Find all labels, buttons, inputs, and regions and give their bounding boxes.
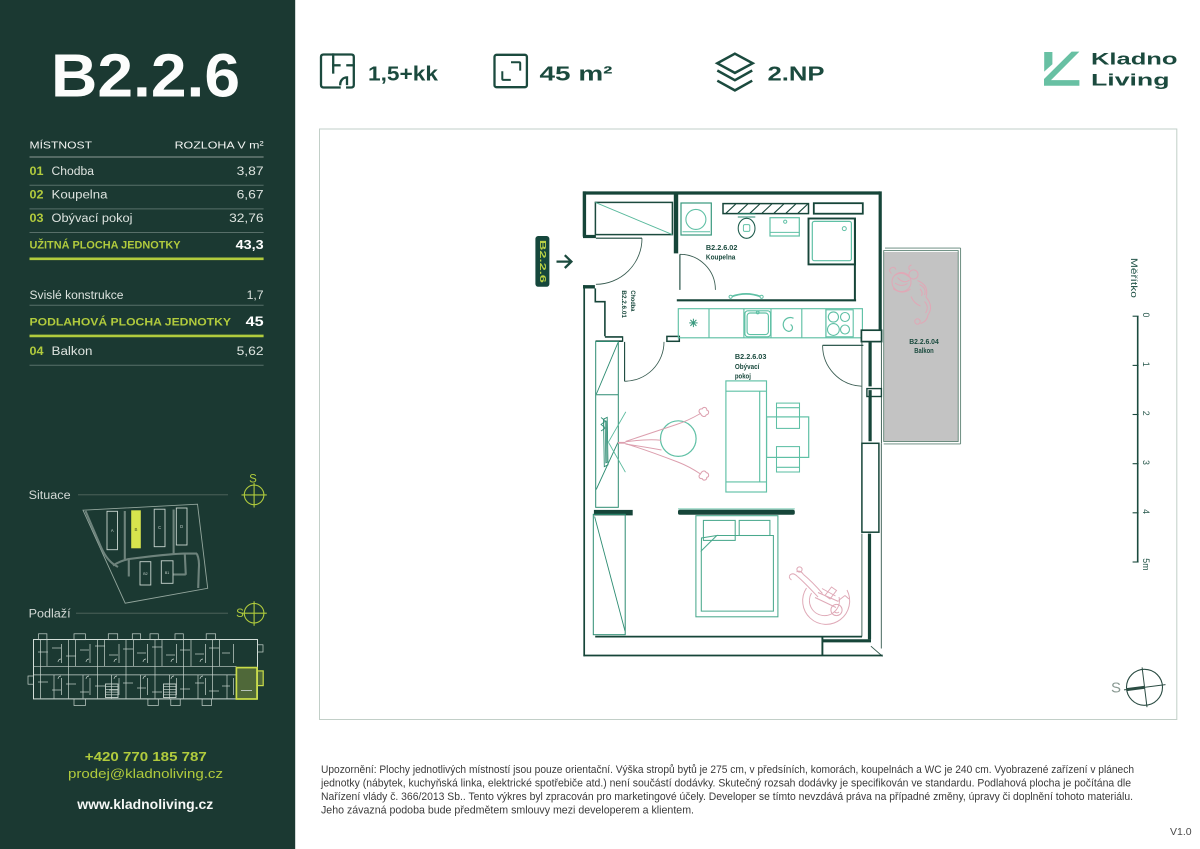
svg-text:jednotky (nábytek, kuchyňská l: jednotky (nábytek, kuchyňská linka, elek… bbox=[320, 777, 1131, 789]
svg-text:04: 04 bbox=[30, 346, 45, 358]
svg-text:C: C bbox=[158, 525, 161, 530]
svg-text:Chodba: Chodba bbox=[52, 166, 95, 178]
svg-text:Koupelna: Koupelna bbox=[52, 190, 109, 202]
svg-text:pokoj: pokoj bbox=[735, 373, 751, 380]
svg-text:Obývací: Obývací bbox=[735, 364, 760, 371]
svg-text:02: 02 bbox=[30, 190, 44, 202]
svg-text:5m: 5m bbox=[1141, 558, 1151, 570]
svg-text:B2.2.6.01: B2.2.6.01 bbox=[620, 290, 627, 318]
svg-text:1,5+kk: 1,5+kk bbox=[368, 63, 439, 86]
svg-text:+420 770 185 787: +420 770 185 787 bbox=[85, 749, 207, 764]
svg-text:1: 1 bbox=[1141, 362, 1151, 367]
svg-text:3,87: 3,87 bbox=[237, 166, 264, 178]
svg-text:prodej@kladnoliving.cz: prodej@kladnoliving.cz bbox=[68, 766, 223, 781]
svg-text:Chodba: Chodba bbox=[629, 290, 636, 311]
svg-text:Kladno: Kladno bbox=[1091, 50, 1178, 68]
svg-text:Koupelna: Koupelna bbox=[706, 255, 736, 262]
svg-text:1,7: 1,7 bbox=[247, 290, 264, 302]
svg-text:Obývací pokoj: Obývací pokoj bbox=[52, 213, 133, 225]
svg-text:2: 2 bbox=[1141, 411, 1151, 416]
svg-text:B2: B2 bbox=[143, 572, 147, 576]
svg-text:B2.2.6: B2.2.6 bbox=[51, 42, 240, 110]
svg-text:Upozornění: Plochy jednotlivýc: Upozornění: Plochy jednotlivých místnost… bbox=[321, 764, 1134, 776]
svg-text:03: 03 bbox=[30, 213, 44, 225]
svg-text:43,3: 43,3 bbox=[236, 237, 264, 252]
svg-text:Balkon: Balkon bbox=[914, 348, 934, 355]
svg-text:B2.2.6.03: B2.2.6.03 bbox=[735, 354, 767, 361]
svg-text:D: D bbox=[180, 524, 183, 529]
svg-text:MÍSTNOST: MÍSTNOST bbox=[30, 139, 93, 152]
svg-text:Living: Living bbox=[1091, 71, 1170, 89]
svg-text:V1.0: V1.0 bbox=[1170, 826, 1192, 838]
svg-text:0: 0 bbox=[1141, 313, 1151, 318]
svg-text:A: A bbox=[111, 528, 114, 533]
svg-text:Měřítko: Měřítko bbox=[1129, 258, 1139, 298]
svg-text:PODLAHOVÁ PLOCHA JEDNOTKY: PODLAHOVÁ PLOCHA JEDNOTKY bbox=[30, 316, 232, 329]
svg-text:ROZLOHA V m²: ROZLOHA V m² bbox=[175, 141, 265, 152]
svg-text:S: S bbox=[236, 608, 244, 620]
svg-text:2.NP: 2.NP bbox=[768, 63, 825, 86]
svg-text:45 m²: 45 m² bbox=[540, 63, 613, 86]
svg-text:S: S bbox=[249, 473, 257, 485]
svg-text:www.kladnoliving.cz: www.kladnoliving.cz bbox=[76, 797, 213, 812]
svg-text:Podlaží: Podlaží bbox=[29, 609, 72, 621]
svg-text:B2.2.6.02: B2.2.6.02 bbox=[706, 245, 738, 252]
svg-text:4: 4 bbox=[1141, 509, 1151, 514]
svg-text:S: S bbox=[1111, 680, 1121, 697]
svg-text:Situace: Situace bbox=[29, 490, 71, 502]
svg-text:32,76: 32,76 bbox=[229, 213, 264, 225]
svg-text:B1: B1 bbox=[165, 571, 169, 575]
svg-text:B2.2.6: B2.2.6 bbox=[538, 240, 547, 284]
svg-text:B: B bbox=[135, 527, 138, 532]
svg-text:5,62: 5,62 bbox=[237, 346, 264, 358]
svg-text:Svislé konstrukce: Svislé konstrukce bbox=[30, 290, 124, 302]
svg-text:6,67: 6,67 bbox=[237, 190, 264, 202]
svg-text:45: 45 bbox=[246, 314, 265, 329]
svg-text:Jeho závazná podoba bude předm: Jeho závazná podoba bude předmětem smlou… bbox=[321, 804, 694, 816]
svg-text:3: 3 bbox=[1141, 460, 1151, 465]
svg-text:01: 01 bbox=[30, 166, 45, 178]
svg-text:B2.2.6.04: B2.2.6.04 bbox=[909, 339, 939, 346]
svg-text:Nařízení vlády č. 366/2013 Sb.: Nařízení vlády č. 366/2013 Sb.. Tento vý… bbox=[321, 791, 1133, 803]
svg-text:UŽITNÁ PLOCHA JEDNOTKY: UŽITNÁ PLOCHA JEDNOTKY bbox=[30, 239, 181, 252]
svg-text:Balkon: Balkon bbox=[52, 346, 93, 358]
